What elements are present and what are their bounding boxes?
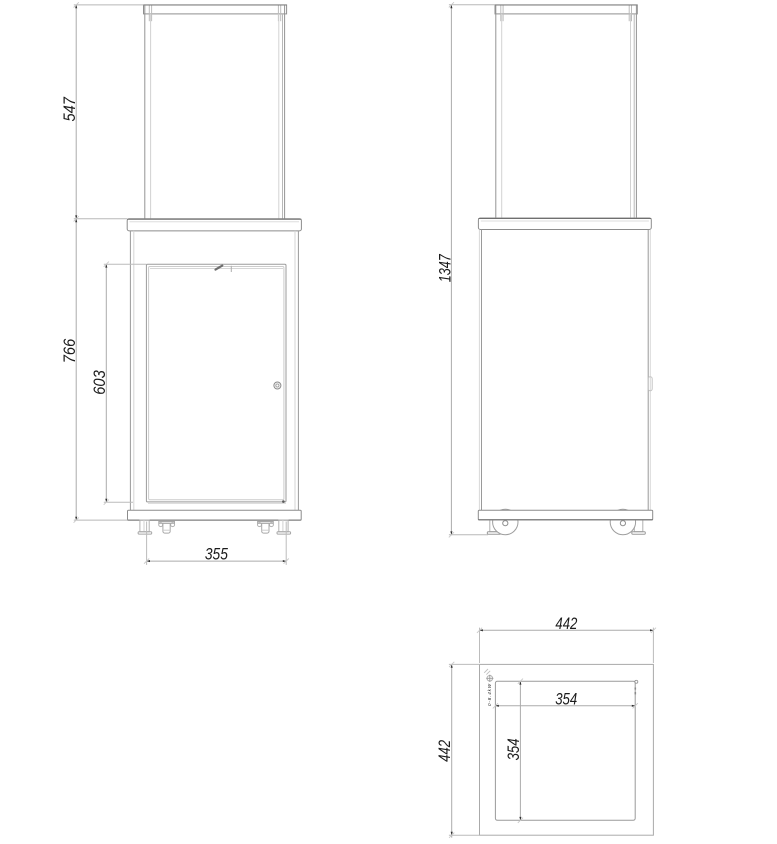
svg-text:0-8.4kW: 0-8.4kW bbox=[487, 683, 492, 706]
svg-text:354: 354 bbox=[505, 738, 523, 760]
svg-text:1347: 1347 bbox=[437, 254, 455, 283]
svg-text:766: 766 bbox=[61, 339, 79, 364]
svg-text:355: 355 bbox=[205, 546, 229, 564]
svg-text:442: 442 bbox=[436, 740, 454, 762]
svg-text:442: 442 bbox=[555, 615, 577, 633]
svg-text:547: 547 bbox=[61, 96, 79, 121]
svg-text:354: 354 bbox=[555, 691, 577, 709]
svg-text:603: 603 bbox=[91, 370, 109, 395]
